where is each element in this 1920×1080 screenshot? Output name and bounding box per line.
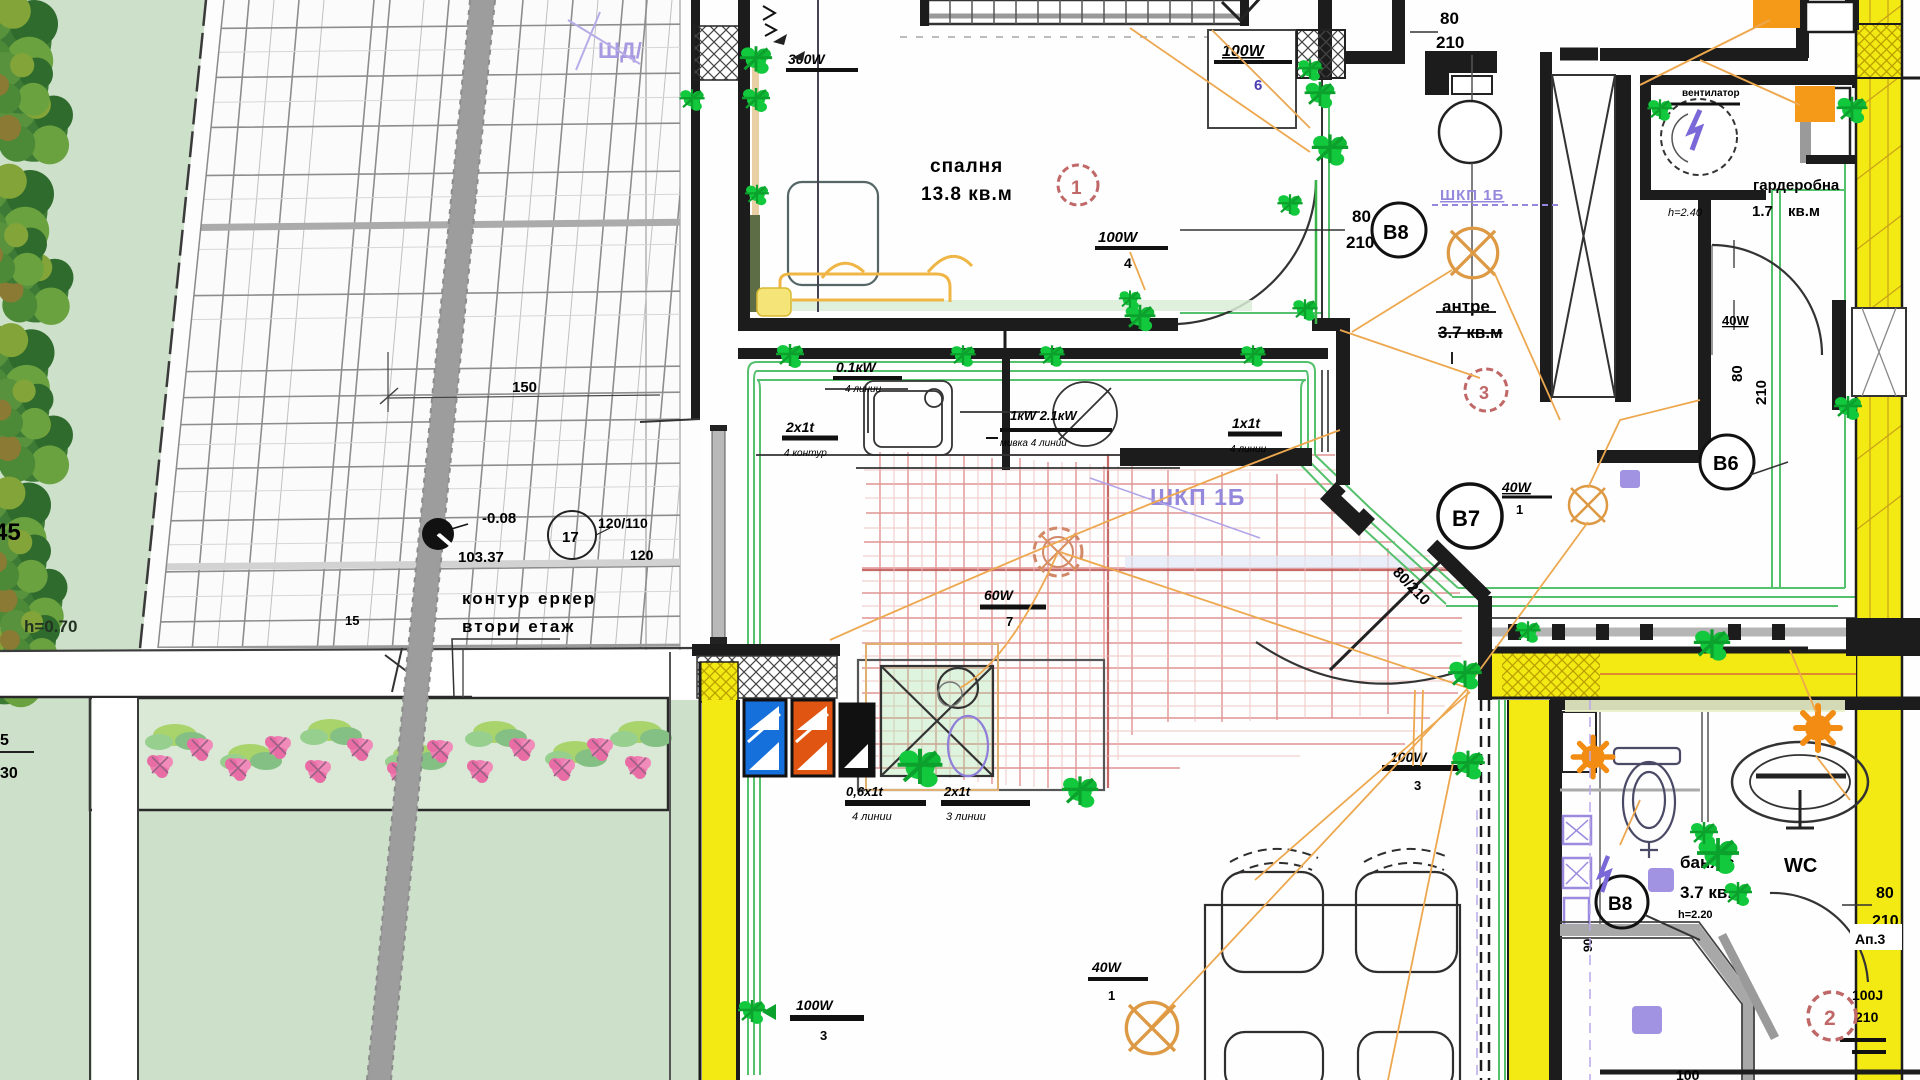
svg-text:40W: 40W — [1091, 959, 1123, 975]
svg-text:3: 3 — [820, 1028, 827, 1043]
svg-text:17: 17 — [562, 529, 579, 546]
svg-text:80: 80 — [1440, 9, 1459, 28]
svg-text:80: 80 — [1876, 885, 1894, 902]
svg-text:1.7: 1.7 — [1752, 203, 1773, 220]
svg-text:4 линии: 4 линии — [1230, 444, 1267, 455]
svg-text:WC: WC — [1784, 855, 1817, 877]
svg-text:103.37: 103.37 — [458, 549, 504, 566]
svg-text:антре: антре — [1442, 297, 1490, 316]
svg-text:210: 210 — [1346, 233, 1374, 252]
svg-text:1: 1 — [1071, 178, 1082, 199]
svg-text:1кW 2.1кW: 1кW 2.1кW — [1010, 408, 1078, 423]
svg-text:мивка 4 линии: мивка 4 линии — [1000, 438, 1067, 449]
svg-text:100: 100 — [1676, 1067, 1700, 1080]
svg-text:0,6x1t: 0,6x1t — [846, 784, 884, 799]
svg-text:втори етаж: втори етаж — [462, 617, 575, 636]
svg-text:2: 2 — [1824, 1007, 1836, 1030]
svg-text:210: 210 — [1436, 33, 1464, 52]
svg-text:h=2.20: h=2.20 — [1678, 909, 1713, 921]
svg-text:40W: 40W — [1501, 479, 1533, 495]
svg-text:60W: 60W — [984, 587, 1015, 603]
svg-text:15: 15 — [345, 613, 359, 628]
svg-text:3 линии: 3 линии — [946, 811, 986, 823]
svg-text:7: 7 — [1006, 614, 1013, 629]
svg-text:100J: 100J — [1852, 987, 1883, 1003]
svg-text:4 линии: 4 линии — [852, 811, 892, 823]
svg-text:1: 1 — [1108, 988, 1115, 1003]
svg-text:B7: B7 — [1452, 506, 1480, 531]
svg-text:120: 120 — [630, 547, 654, 563]
svg-text:210: 210 — [1855, 1009, 1879, 1025]
svg-text:300W: 300W — [788, 51, 826, 67]
svg-text:0.1кW: 0.1кW — [836, 359, 878, 375]
svg-text:80: 80 — [1729, 365, 1746, 382]
svg-text:45: 45 — [0, 519, 21, 546]
svg-text:4 контур: 4 контур — [784, 448, 827, 459]
svg-text:3.7 кв.м: 3.7 кв.м — [1438, 323, 1503, 342]
svg-text:B8: B8 — [1608, 894, 1632, 915]
svg-text:Ап.3: Ап.3 — [1855, 931, 1885, 947]
svg-text:3: 3 — [1414, 778, 1421, 793]
svg-text:80: 80 — [1352, 207, 1371, 226]
svg-text:B6: B6 — [1713, 453, 1739, 475]
svg-text:ШКП 1Б: ШКП 1Б — [1440, 187, 1504, 204]
svg-text:h=0.70: h=0.70 — [24, 617, 77, 636]
svg-text:контур еркер: контур еркер — [462, 589, 596, 608]
svg-text:h=2.40: h=2.40 — [1668, 207, 1703, 219]
svg-text:-0.08: -0.08 — [482, 510, 516, 527]
svg-text:ШКП 1Б: ШКП 1Б — [1150, 484, 1245, 510]
svg-text:100W: 100W — [796, 997, 834, 1013]
svg-text:13.8 кв.м: 13.8 кв.м — [921, 184, 1013, 205]
svg-text:2x1t: 2x1t — [943, 784, 971, 799]
svg-text:150: 150 — [512, 379, 537, 396]
svg-text:кв.м: кв.м — [1788, 203, 1820, 220]
svg-text:2x1t: 2x1t — [785, 419, 815, 435]
svg-text:90: 90 — [1581, 938, 1595, 952]
svg-text:B8: B8 — [1383, 222, 1409, 244]
svg-text:210: 210 — [1753, 380, 1770, 405]
svg-text:вентилатор: вентилатор — [1682, 88, 1740, 99]
svg-text:гардеробна: гардеробна — [1753, 177, 1840, 194]
svg-text:100W: 100W — [1098, 229, 1139, 246]
svg-text:120/110: 120/110 — [598, 515, 648, 531]
svg-text:3: 3 — [1479, 383, 1489, 403]
svg-text:спалня: спалня — [930, 156, 1003, 177]
svg-text:4: 4 — [1124, 255, 1132, 271]
svg-text:30: 30 — [0, 765, 18, 782]
svg-text:4 линии: 4 линии — [845, 384, 882, 395]
svg-text:5: 5 — [0, 732, 9, 749]
svg-text:40W: 40W — [1722, 313, 1749, 328]
svg-text:1x1t: 1x1t — [1232, 415, 1261, 431]
svg-text:1: 1 — [1516, 502, 1523, 517]
